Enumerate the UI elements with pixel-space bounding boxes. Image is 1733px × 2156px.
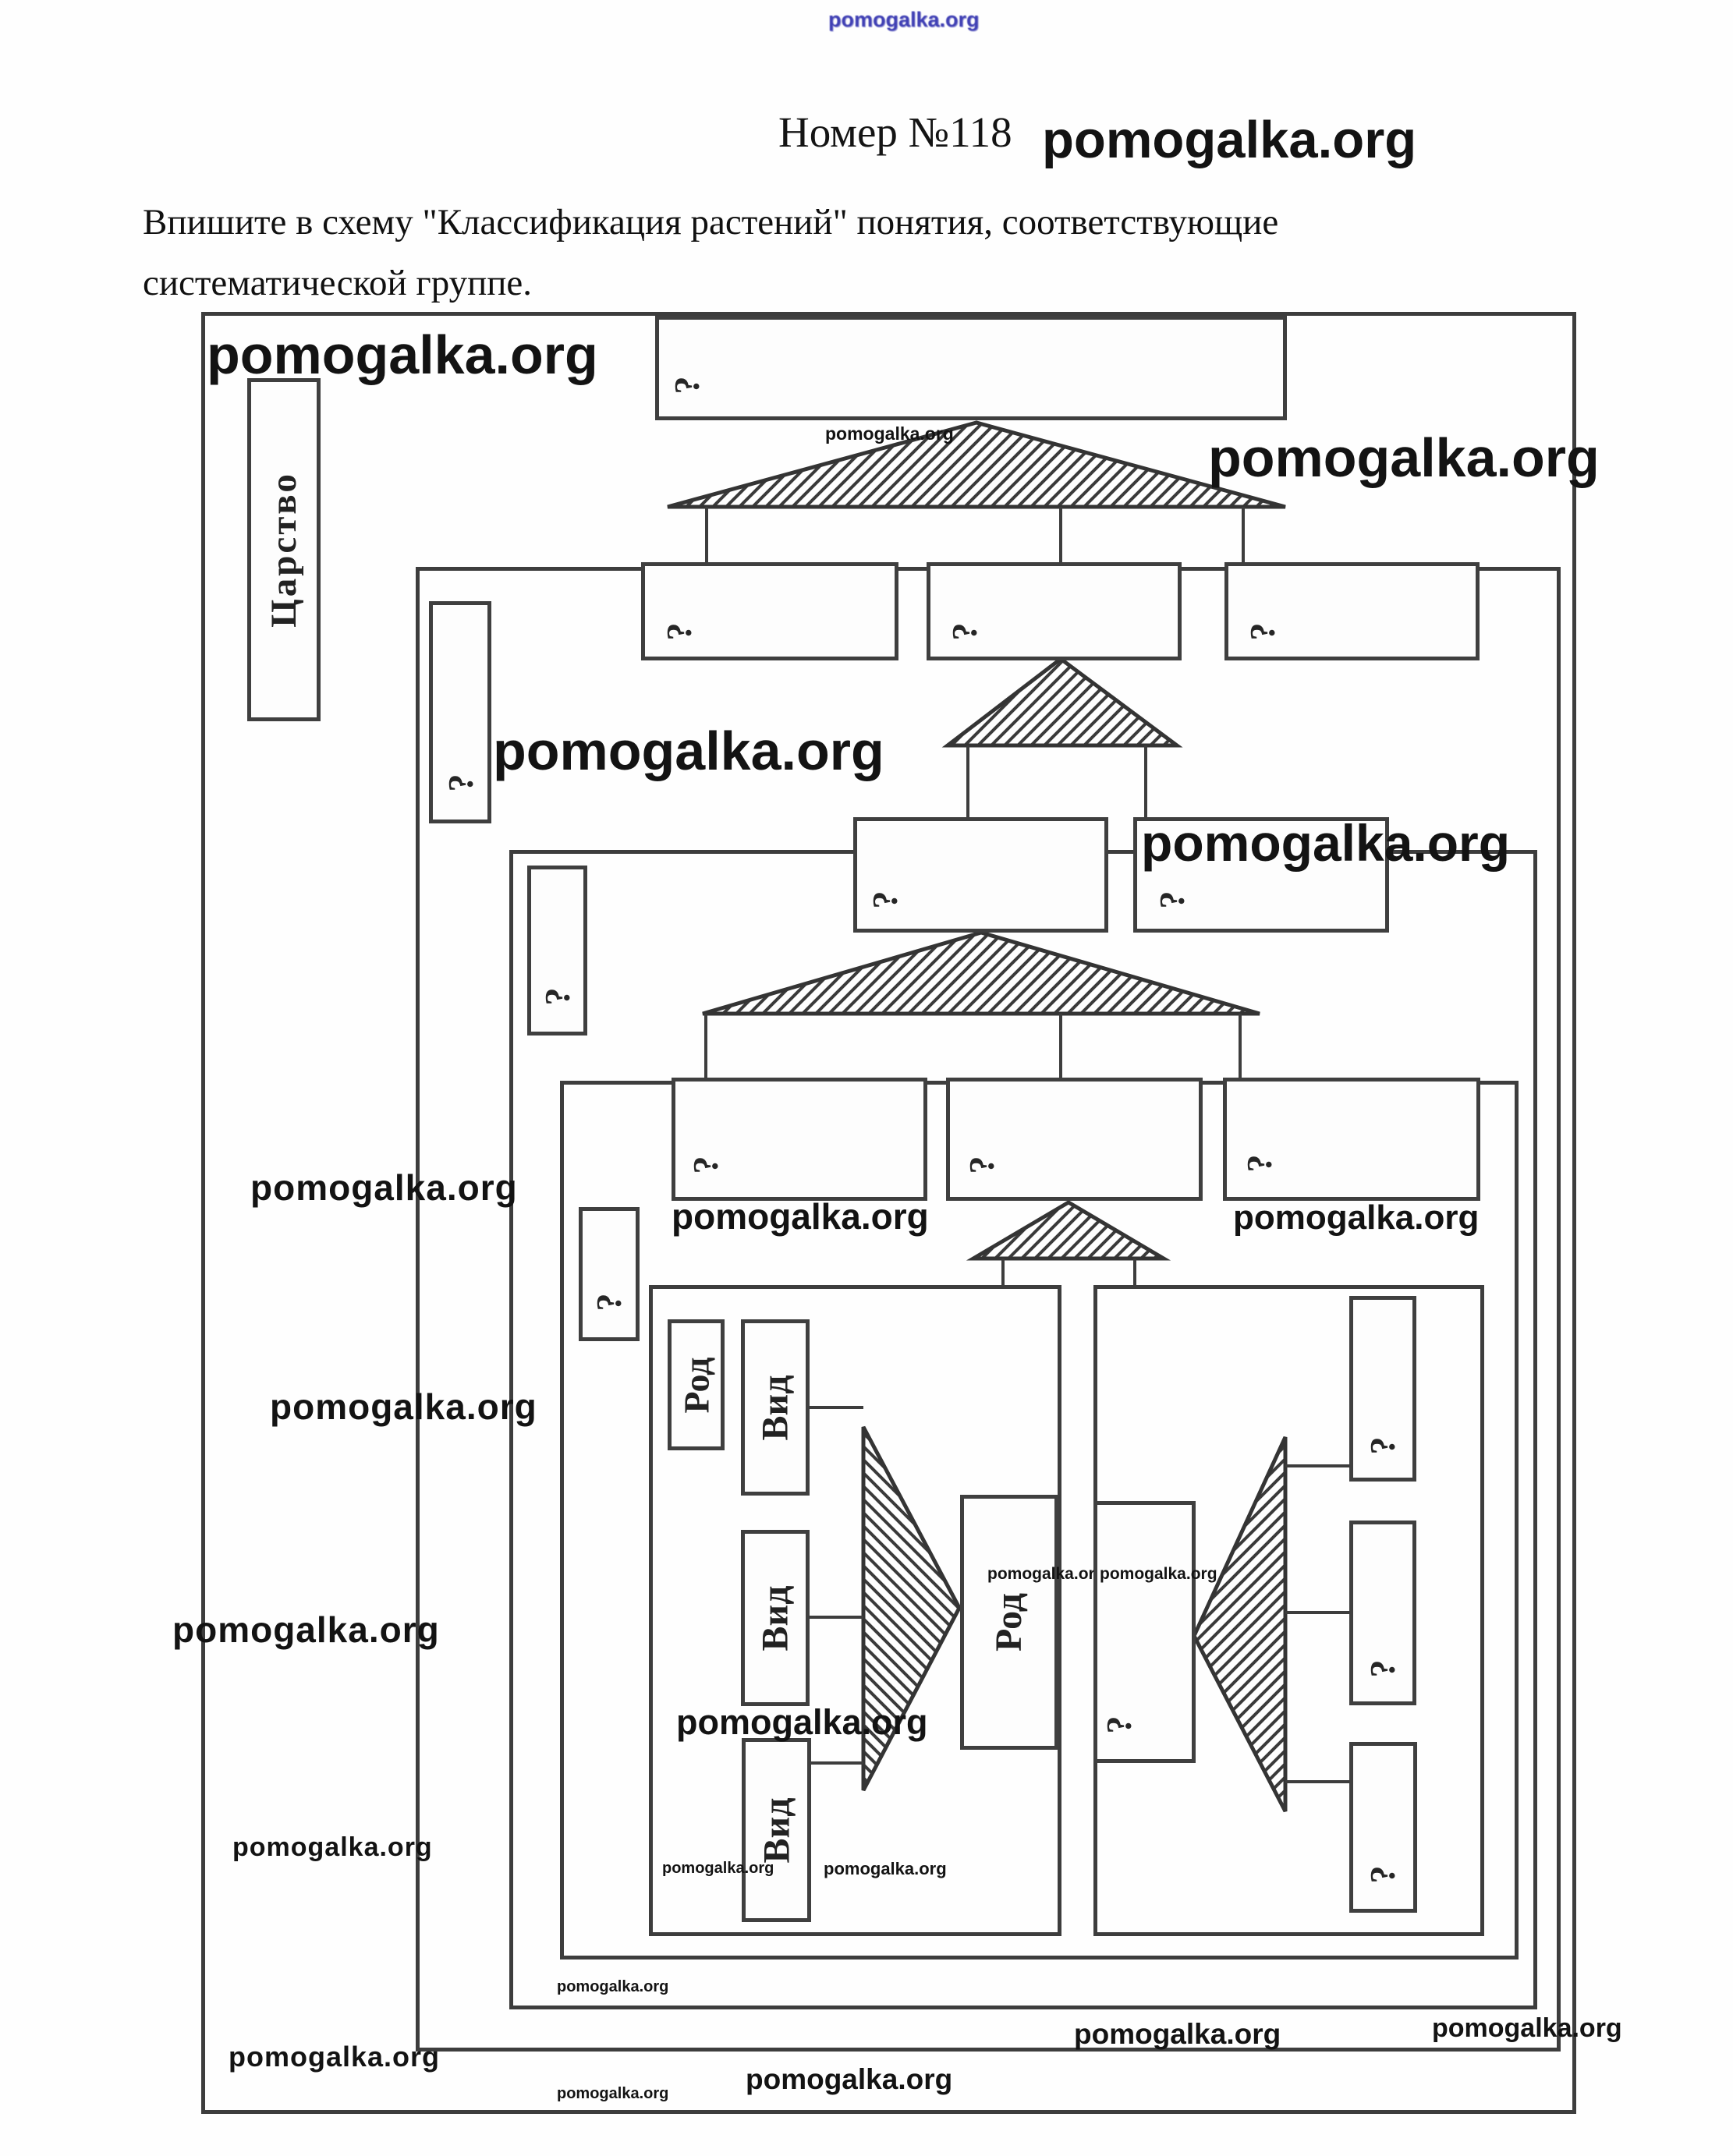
genus-label-box: Род [668,1319,725,1450]
site-watermark: pomogalka.org [172,1612,440,1648]
hatched-triangle-division-split [948,659,1177,745]
worksheet-page: pomogalka.org Номер №118 pomogalka.org В… [0,0,1733,2156]
hatched-triangle-order-split [973,1202,1164,1259]
site-watermark: pomogalka.org [557,2086,668,2101]
connector-line [809,1406,863,1409]
site-watermark: pomogalka.org [557,1979,668,1995]
species-example-box-2: Вид [741,1530,810,1706]
site-watermark: pomogalka.org [1100,1566,1217,1582]
site-watermark: pomogalka.org [824,1860,947,1878]
connector-line [1242,507,1245,564]
connector-line [1285,1464,1349,1467]
species-question-mark-2: ? [1357,1652,1407,1686]
site-watermark: pomogalka.org [662,1860,774,1876]
order-label-answer-box[interactable] [579,1207,640,1341]
species-question-mark-1: ? [1357,1428,1407,1463]
kingdom-answer-box[interactable] [655,316,1287,420]
connector-line [1001,1259,1005,1287]
site-watermark: pomogalka.org [746,2065,952,2094]
order-question-mark-1: ? [680,1148,730,1182]
connector-line [966,745,969,820]
site-watermark: pomogalka.org [1074,2020,1281,2048]
site-watermark: pomogalka.org [493,724,884,778]
connector-line [809,1616,863,1619]
site-watermark: pomogalka.org [229,2043,440,2071]
order-question-mark-3: ? [1234,1146,1284,1181]
order-answer-box-2[interactable] [946,1078,1203,1201]
site-watermark: pomogalka.org [1141,817,1510,869]
division-question-mark-2: ? [939,614,989,649]
connector-line [1059,1014,1062,1079]
connector-line [1239,1014,1242,1079]
kingdom-label: Царство [263,472,305,628]
species-label: Вид [754,1585,797,1651]
species-label: Вид [755,1797,798,1863]
site-watermark: pomogalka.org [987,1566,1105,1582]
site-watermark: pomogalka.org [232,1834,433,1860]
site-watermark: pomogalka.org [1208,430,1600,485]
class-label-question-mark: ? [532,979,582,1014]
division-question-mark-3: ? [1237,614,1287,649]
kingdom-question-mark: ? [661,368,711,402]
order-answer-box-1[interactable] [672,1078,927,1201]
connector-line [705,507,708,564]
site-watermark: pomogalka.org [207,327,598,382]
class-question-mark-2: ? [1146,883,1196,917]
species-example-box-3: Вид [742,1738,811,1922]
kingdom-label-box: Царство [247,378,321,721]
species-question-mark-3: ? [1357,1857,1407,1892]
order-answer-box-3[interactable] [1223,1078,1480,1201]
genus-question-mark: ? [1093,1708,1143,1742]
class-question-mark-1: ? [859,883,909,917]
hatched-triangle-kingdom-split [668,423,1285,507]
genus-example-box: Род [960,1495,1058,1750]
connector-line [1285,1611,1349,1614]
division-question-mark-1: ? [654,614,703,649]
division-label-question-mark: ? [435,766,485,800]
connector-line [810,1761,863,1765]
connector-line [1133,1259,1136,1287]
site-watermark: pomogalka.org [270,1389,537,1425]
connector-line [1285,1780,1349,1783]
hatched-triangle-species-to-genus-right [1194,1437,1285,1811]
site-watermark: pomogalka.org [1432,2015,1622,2041]
site-watermark: pomogalka.org [1233,1201,1479,1235]
genus-label: Род [675,1357,717,1413]
site-watermark: pomogalka.org [250,1170,518,1205]
site-watermark: pomogalka.org [672,1198,929,1234]
order-question-mark-2: ? [956,1148,1006,1182]
hatched-triangle-class-split [703,933,1260,1014]
genus-label: Род [988,1593,1031,1652]
site-watermark: pomogalka.org [825,425,954,443]
connector-line [704,1014,707,1079]
order-label-question-mark: ? [583,1285,633,1319]
site-watermark: pomogalka.org [676,1705,928,1740]
connector-line [1144,745,1147,820]
species-label: Вид [754,1375,797,1440]
species-example-box-1: Вид [741,1319,810,1496]
connector-line [1059,507,1062,564]
